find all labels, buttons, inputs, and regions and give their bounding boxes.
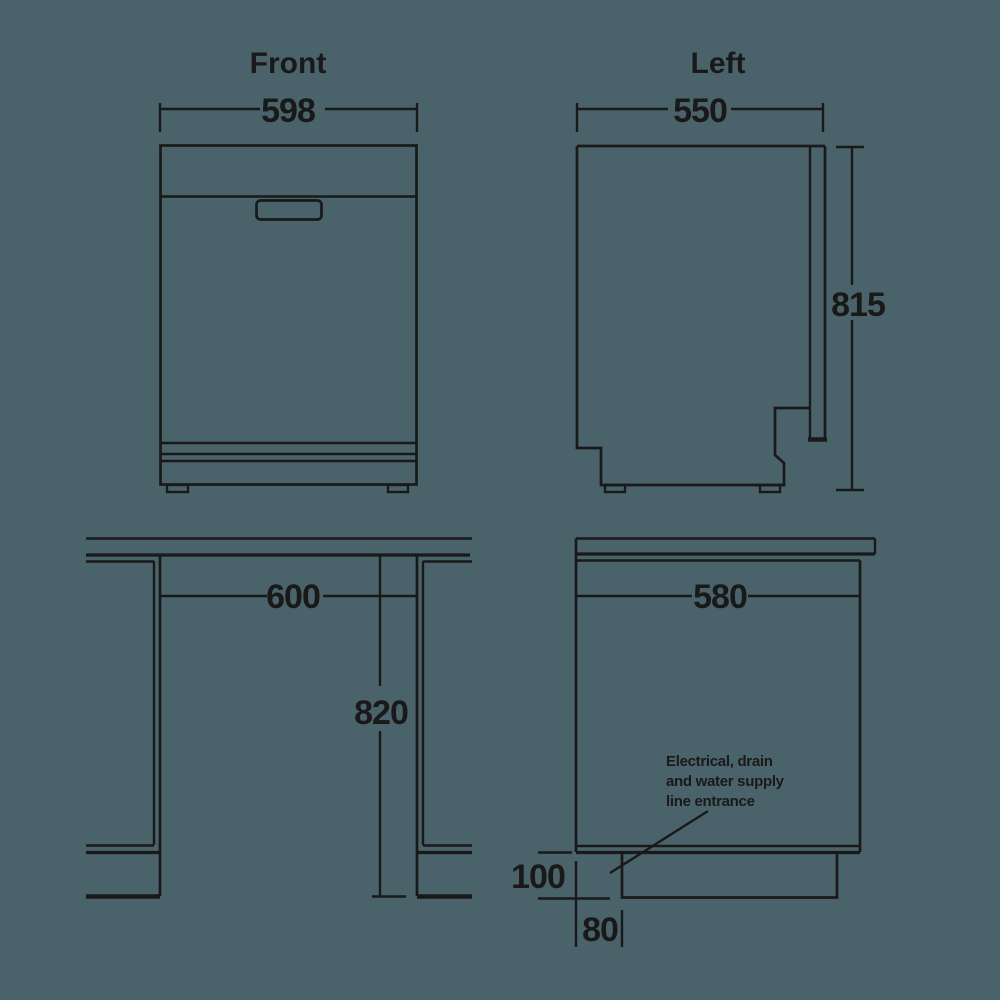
left-cabinet-panel-lines	[86, 561, 154, 846]
left-body-outline	[577, 146, 810, 485]
right-cabinet-panel-lines	[423, 561, 472, 846]
dishwasher-dimension-diagram: Front 598 Left 550 815	[0, 0, 1000, 1000]
callout-text-line3: line entrance	[666, 793, 755, 810]
front-view-title: Front	[250, 47, 327, 80]
left-view-title: Left	[691, 47, 746, 80]
cutout-side-view: 580 100 80 Electrical, drain and water s…	[511, 539, 875, 950]
side-countertop-top	[576, 539, 875, 555]
left-rear-foot	[760, 485, 780, 492]
plinth-outline	[622, 853, 837, 898]
cutout-height-dim-label: 820	[354, 694, 408, 732]
front-width-dim-label: 598	[261, 92, 315, 130]
left-view: Left 550 815	[577, 47, 885, 492]
left-height-dim-label: 815	[831, 286, 885, 324]
front-left-foot	[167, 485, 188, 492]
recess-height-dim-label: 100	[511, 858, 565, 896]
front-right-foot	[388, 485, 408, 492]
cutout-front-view: 600 820	[86, 539, 472, 897]
front-view: Front 598	[160, 47, 417, 492]
left-front-foot	[605, 485, 625, 492]
side-depth-dim-label: 580	[693, 578, 747, 616]
front-door-handle	[257, 201, 322, 220]
cutout-width-dim-label: 600	[266, 578, 320, 616]
recess-inset-dim-label: 80	[582, 911, 618, 949]
front-kickplate-lines	[160, 443, 417, 461]
left-width-dim-label: 550	[673, 92, 727, 130]
callout-text-line1: Electrical, drain	[666, 753, 773, 770]
callout-leader-line	[610, 811, 708, 873]
callout-text-line2: and water supply	[666, 773, 785, 790]
